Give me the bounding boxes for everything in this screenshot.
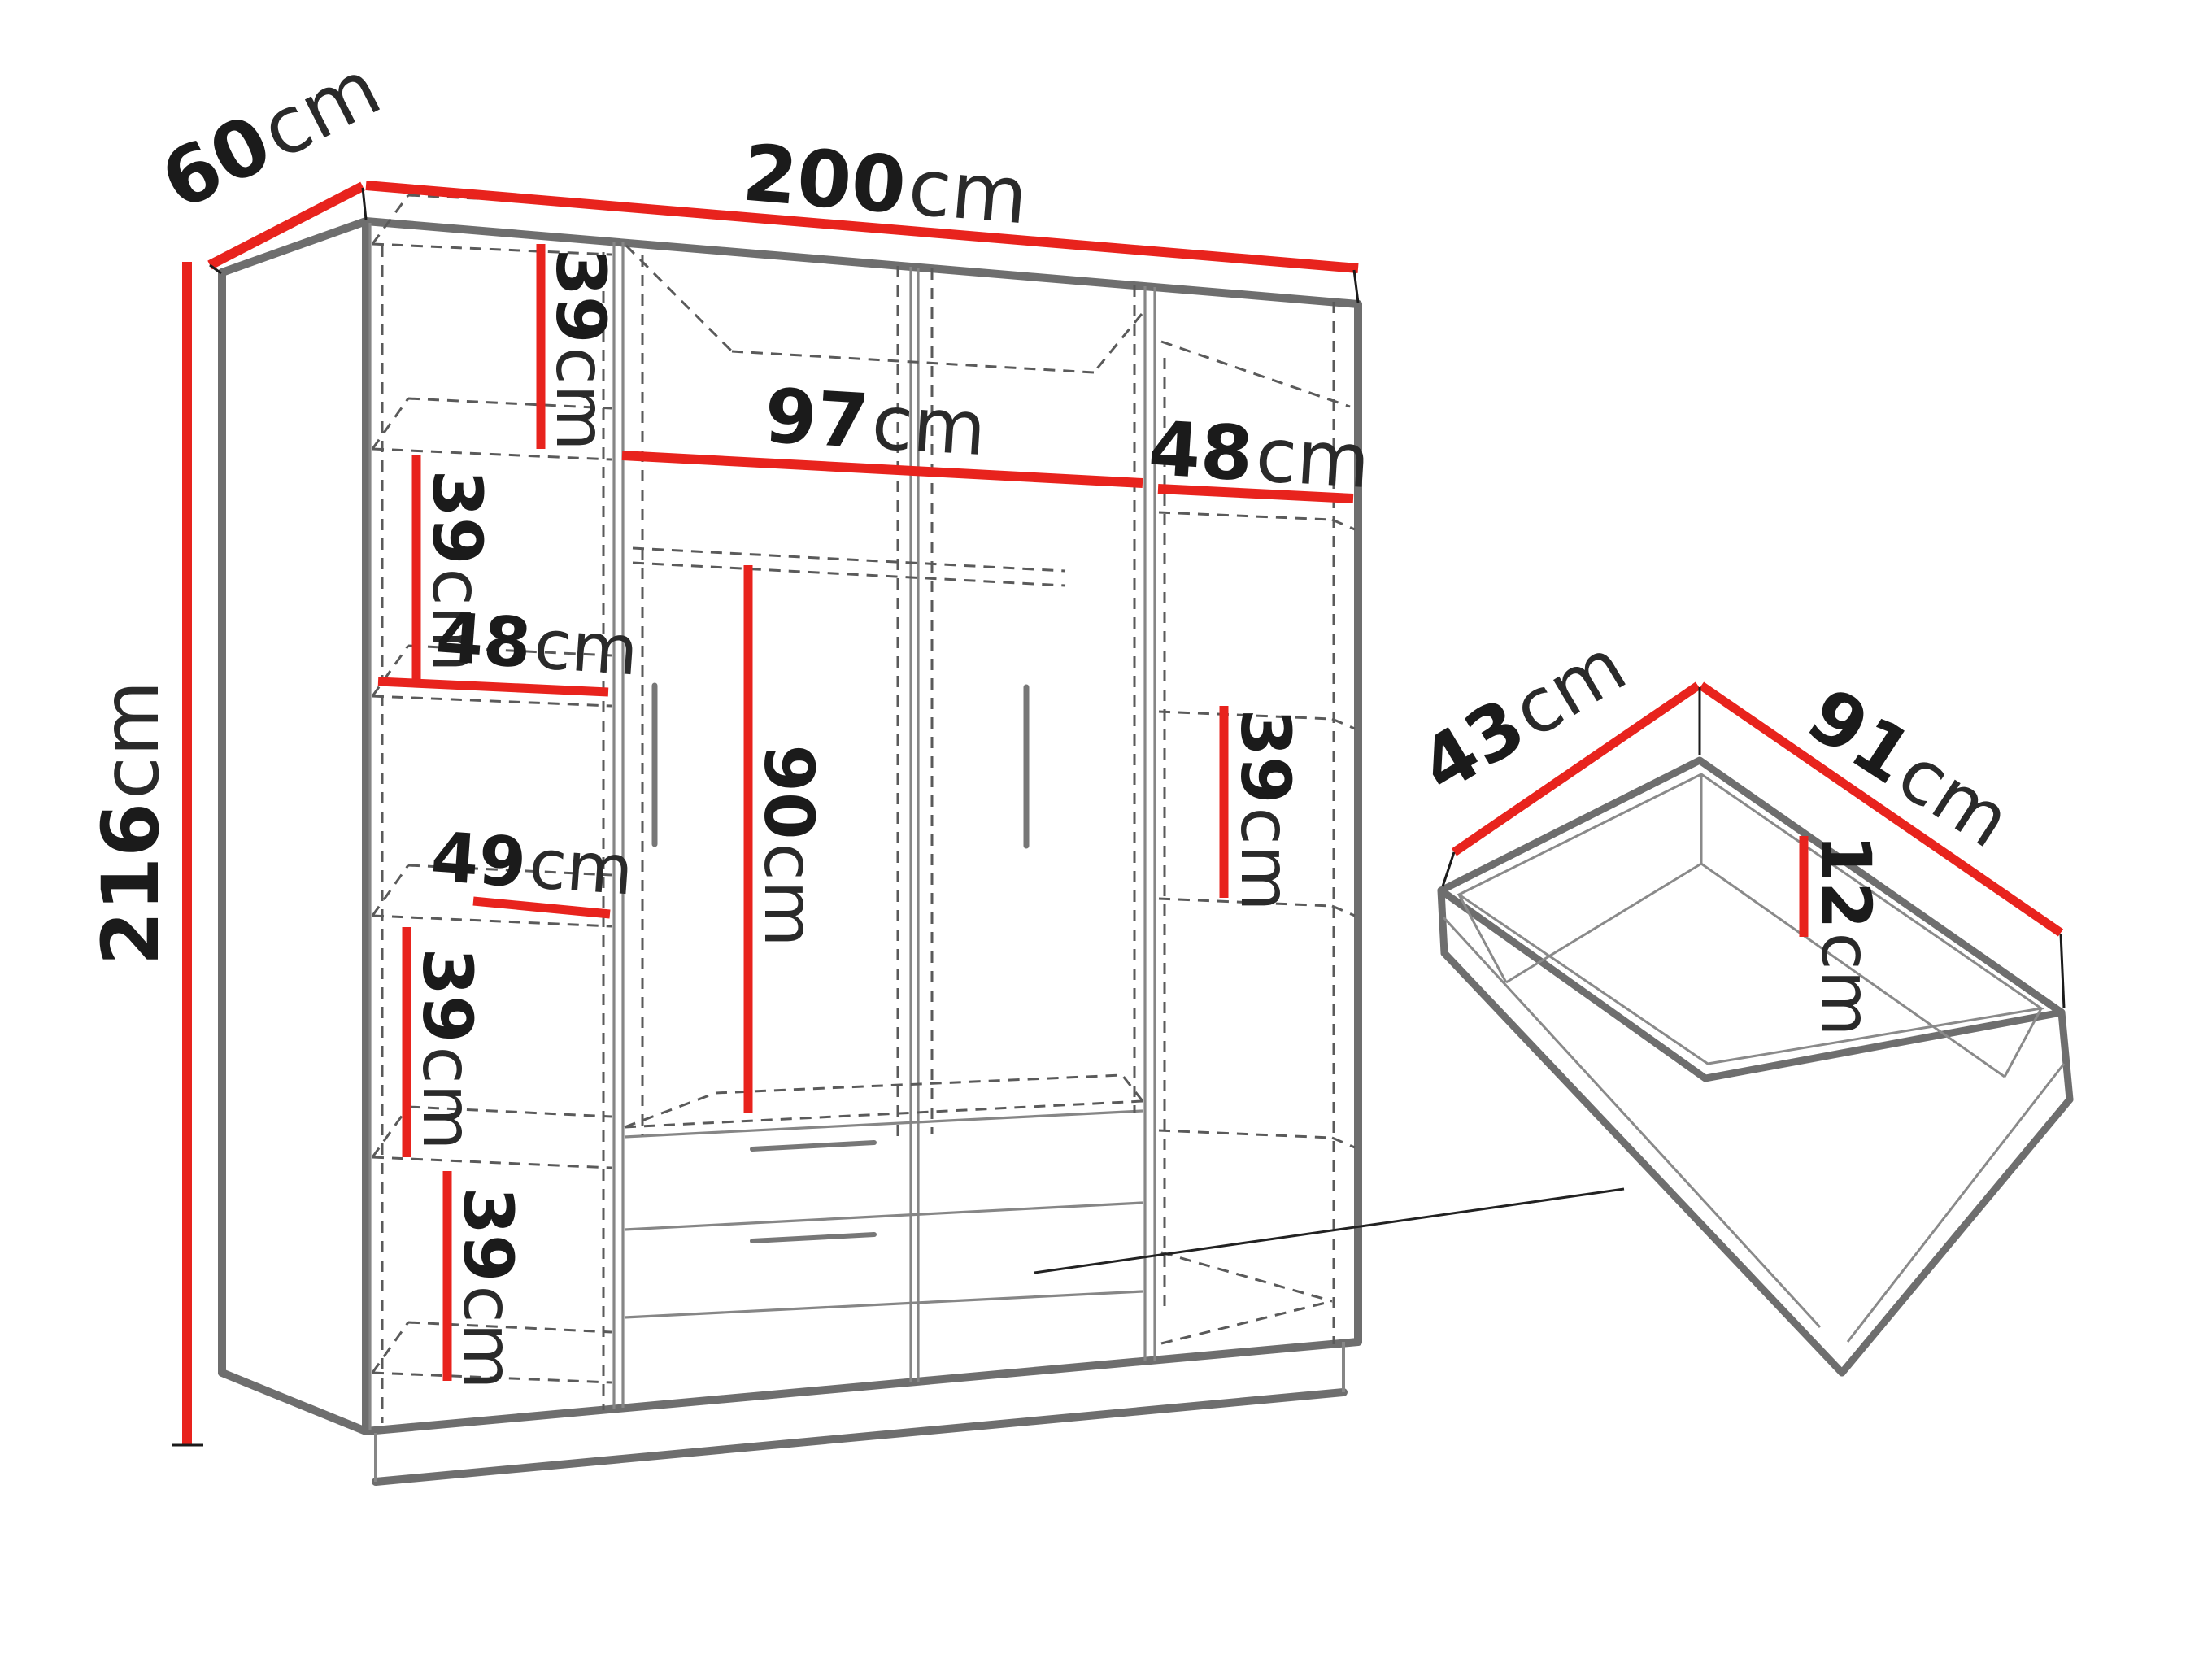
dimension-middle-97: 97cm: [622, 372, 1143, 483]
wardrobe-plinth-bottom: [376, 1392, 1343, 1482]
drawer-front-left-bottom: [1444, 953, 1842, 1373]
dimension-tick: [2061, 934, 2064, 1008]
dimension-tick: [1354, 270, 1358, 303]
drawer-leader-line: [1034, 1189, 1624, 1273]
dimension-height-216: 216cm: [85, 262, 187, 1445]
wardrobe-drawer-fronts: [625, 1111, 1143, 1317]
dimension-label-shelf-48-left: 48cm: [433, 597, 641, 690]
wardrobe-bottom-left-edge: [222, 1373, 366, 1431]
dimension-label-drawer-depth-43: 43cm: [1406, 622, 1640, 811]
dimension-middle-90: 90cm: [748, 565, 829, 1113]
dimension-depth-60: 60cm: [147, 42, 394, 265]
dimension-drawer-height-12: 12cm: [1804, 834, 1886, 1037]
drawer-front-right-bottom: [1842, 1099, 2070, 1373]
dimension-label-shelf-39-left-4: 39cm: [448, 1187, 528, 1390]
dimension-label-drawer-height-12: 12cm: [1806, 834, 1886, 1037]
drawer-handle-bottom: [752, 1234, 874, 1241]
dimension-shelf-39-left-3: 39cm: [407, 927, 487, 1157]
door-handles: [655, 686, 1026, 846]
dimension-label-shelf-49-left: 49cm: [429, 816, 636, 910]
drawer-left-corner-edge: [1441, 890, 1444, 953]
dimension-shelf-39-left-4: 39cm: [447, 1171, 528, 1389]
wardrobe-top-edges: [222, 221, 1358, 304]
dimension-label-shelf-39-left-3: 39cm: [407, 948, 487, 1151]
dimension-label-middle-97: 97cm: [762, 372, 988, 472]
dimension-label-shelf-48-right: 48cm: [1146, 405, 1372, 505]
drawer-right-corner-edge: [2062, 1012, 2070, 1099]
dimension-label-shelf-39-right: 39cm: [1226, 709, 1305, 912]
dimension-label-height-216: 216cm: [85, 681, 176, 966]
dimension-label-shelf-39-left-1: 39cm: [541, 249, 620, 451]
wardrobe-drawer-handles: [752, 1143, 874, 1241]
dimension-drawer-depth-43: 43cm: [1406, 622, 1698, 852]
dimension-tick: [363, 188, 366, 220]
dimension-shelf-49-left: 49cm: [429, 816, 636, 914]
dimension-shelf-48-right: 48cm: [1146, 405, 1372, 505]
dimension-shelf-39-right: 39cm: [1224, 706, 1305, 911]
dimension-shelf-39-left-1: 39cm: [541, 244, 620, 451]
wardrobe-diagram-svg: 200cm60cm216cm39cm39cm48cm49cm39cm39cm97…: [0, 0, 2212, 1659]
dimension-label-middle-90: 90cm: [749, 745, 829, 947]
diagram-stage: 200cm60cm216cm39cm39cm48cm49cm39cm39cm97…: [0, 0, 2212, 1659]
dimension-width-200: 200cm: [366, 128, 1358, 268]
drawer-handle-top: [752, 1143, 874, 1149]
dimension-label-depth-60: 60cm: [147, 42, 394, 229]
